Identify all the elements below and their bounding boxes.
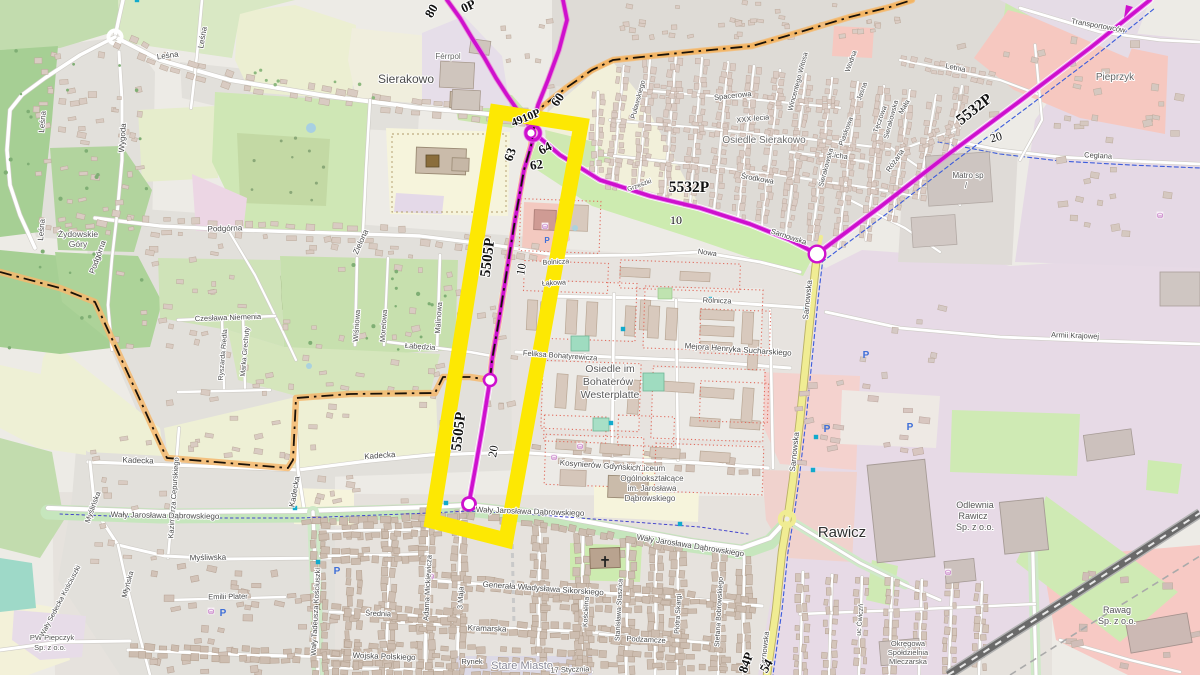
svg-text:Emilii Plater: Emilii Plater bbox=[208, 592, 248, 602]
svg-text:⛁: ⛁ bbox=[551, 454, 557, 462]
svg-text:Stare Miasto: Stare Miasto bbox=[491, 660, 553, 672]
svg-text:Sp. z o.o.: Sp. z o.o. bbox=[34, 643, 66, 652]
svg-text:10: 10 bbox=[513, 262, 529, 276]
svg-text:Sp. z o.o.: Sp. z o.o. bbox=[956, 522, 994, 532]
svg-text:Łąkowa: Łąkowa bbox=[542, 279, 567, 287]
svg-text:Dąbrowskiego: Dąbrowskiego bbox=[625, 494, 676, 503]
svg-text:Armii Krajowej: Armii Krajowej bbox=[1051, 330, 1100, 341]
svg-text:Bolnicza: Bolnicza bbox=[543, 258, 570, 266]
svg-text:Mleczarska: Mleczarska bbox=[889, 657, 928, 666]
svg-text:Westerplatte: Westerplatte bbox=[581, 389, 640, 401]
svg-text:Osiedle Sierakowo: Osiedle Sierakowo bbox=[722, 135, 806, 146]
svg-text:Spółdzielnia: Spółdzielnia bbox=[888, 648, 929, 657]
svg-text:5532P: 5532P bbox=[669, 179, 710, 196]
svg-text:Férrpol: Férrpol bbox=[435, 52, 461, 61]
svg-text:Sierakowo: Sierakowo bbox=[378, 72, 434, 86]
svg-text:Okręgowa: Okręgowa bbox=[891, 639, 926, 648]
svg-text:Góry: Góry bbox=[69, 239, 88, 249]
svg-text:P: P bbox=[544, 236, 550, 245]
svg-text:Pieprzyk: Pieprzyk bbox=[1096, 72, 1135, 83]
svg-text:Rynek: Rynek bbox=[461, 657, 483, 666]
svg-text:Myśliwska: Myśliwska bbox=[190, 553, 227, 563]
svg-text:⛁: ⛁ bbox=[1157, 212, 1163, 220]
svg-text:Ogólnokształcące: Ogólnokształcące bbox=[620, 474, 684, 483]
svg-text:⛁: ⛁ bbox=[577, 443, 583, 451]
svg-text:im. Jarosława: im. Jarosława bbox=[628, 484, 677, 493]
svg-text:20: 20 bbox=[485, 444, 501, 458]
svg-text:⛁: ⛁ bbox=[542, 223, 548, 231]
svg-text:⛁: ⛁ bbox=[945, 569, 951, 577]
svg-text:P: P bbox=[863, 350, 870, 361]
svg-text:Bohaterów: Bohaterów bbox=[583, 376, 634, 388]
svg-text:P: P bbox=[907, 422, 914, 433]
svg-text:P: P bbox=[824, 424, 831, 435]
svg-text:Wały Jarosława Dąbrowskiego: Wały Jarosława Dąbrowskiego bbox=[111, 510, 220, 521]
svg-text:Średnia: Średnia bbox=[365, 609, 392, 619]
svg-text:Rawicz: Rawicz bbox=[818, 524, 866, 541]
svg-text:Osiedle im: Osiedle im bbox=[585, 363, 635, 375]
svg-text:Kramarska: Kramarska bbox=[468, 623, 508, 633]
svg-text:Rolnicza: Rolnicza bbox=[703, 296, 733, 306]
svg-text:10: 10 bbox=[670, 213, 682, 227]
svg-text:Rawicz: Rawicz bbox=[958, 511, 988, 521]
svg-text:P: P bbox=[220, 608, 227, 619]
svg-text:P: P bbox=[334, 566, 341, 577]
svg-text:17 Stycznia: 17 Stycznia bbox=[550, 664, 590, 674]
svg-text:Podgórna: Podgórna bbox=[207, 223, 243, 233]
svg-text:Rawag: Rawag bbox=[1103, 605, 1131, 615]
svg-text:3 Maja: 3 Maja bbox=[455, 586, 465, 610]
svg-text:Ceglana: Ceglana bbox=[1084, 150, 1113, 160]
svg-text:Żydowskie: Żydowskie bbox=[58, 229, 98, 239]
svg-text:62: 62 bbox=[529, 156, 544, 173]
svg-text:✝: ✝ bbox=[599, 554, 612, 571]
svg-text:Odlewnia: Odlewnia bbox=[956, 500, 994, 510]
svg-text:PW Piepczyk: PW Piepczyk bbox=[30, 633, 74, 642]
svg-text:Sp. z o.o.: Sp. z o.o. bbox=[1098, 616, 1136, 626]
svg-text:Matro sp: Matro sp bbox=[952, 171, 984, 180]
svg-text:⛁: ⛁ bbox=[208, 608, 214, 616]
svg-text:Kadecka: Kadecka bbox=[122, 455, 154, 465]
